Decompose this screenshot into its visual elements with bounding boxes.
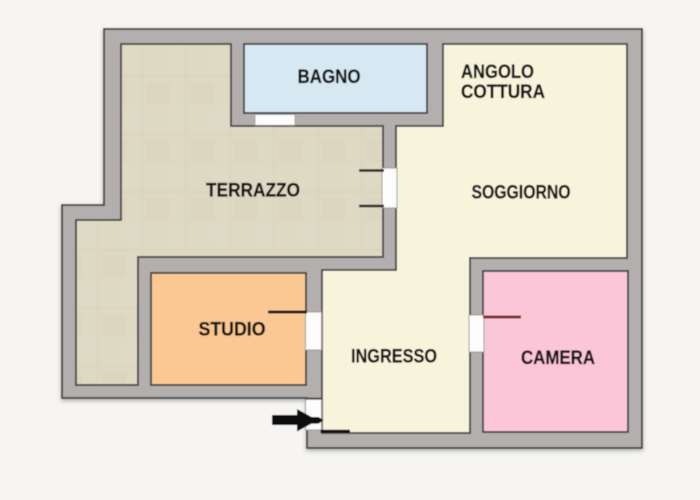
svg-text:CAMERA: CAMERA (521, 348, 595, 369)
svg-text:SOGGIORNO: SOGGIORNO (472, 183, 571, 204)
svg-text:BAGNO: BAGNO (298, 67, 361, 88)
svg-text:ANGOLO: ANGOLO (461, 62, 534, 83)
svg-text:COTTURA: COTTURA (461, 82, 545, 103)
svg-text:STUDIO: STUDIO (199, 320, 266, 341)
svg-text:INGRESSO: INGRESSO (351, 347, 437, 368)
svg-text:TERRAZZO: TERRAZZO (206, 181, 300, 202)
